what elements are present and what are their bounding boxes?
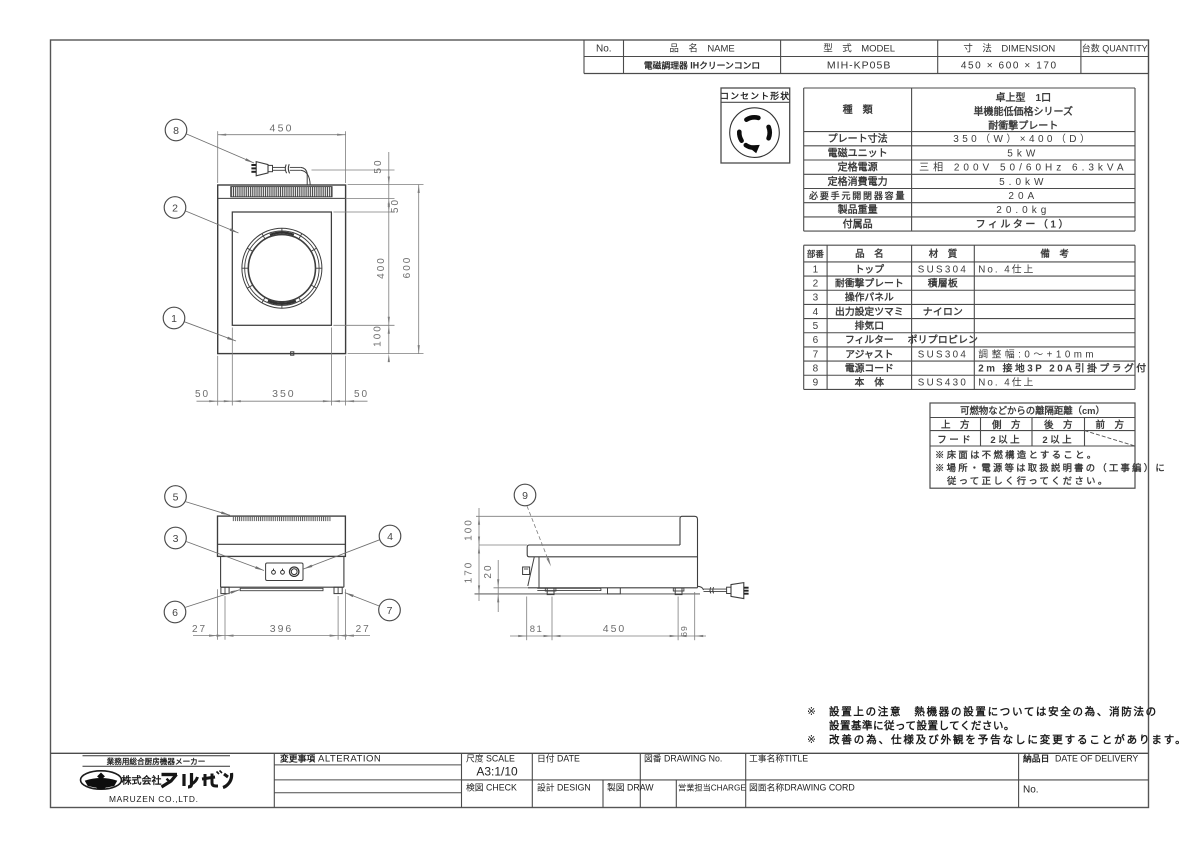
svg-text:図番 DRAWING No.: 図番 DRAWING No. — [644, 753, 722, 764]
svg-text:450 × 600 × 170: 450 × 600 × 170 — [961, 61, 1058, 72]
svg-text:7: 7 — [387, 605, 393, 617]
svg-text:卓上型 1口: 卓上型 1口 — [996, 91, 1052, 104]
svg-text:※床面は不燃構造とすること。: ※床面は不燃構造とすること。 — [935, 449, 1098, 460]
svg-text:備 考: 備 考 — [1040, 248, 1069, 260]
svg-text:50: 50 — [390, 198, 401, 213]
svg-text:2: 2 — [172, 202, 178, 214]
svg-text:27: 27 — [356, 624, 371, 635]
svg-text:350: 350 — [272, 388, 296, 400]
svg-text:ナイロン: ナイロン — [923, 306, 963, 318]
svg-text:1: 1 — [813, 264, 819, 275]
svg-text:50: 50 — [373, 158, 384, 173]
svg-text:※: ※ — [807, 734, 816, 746]
svg-text:170: 170 — [464, 561, 475, 584]
svg-text:9: 9 — [813, 378, 819, 389]
svg-text:400: 400 — [376, 256, 387, 279]
svg-text:2m 接地3P 20A引掛プラグ付: 2m 接地3P 20A引掛プラグ付 — [978, 362, 1148, 375]
svg-text:69: 69 — [679, 625, 689, 636]
svg-text:出力設定ツマミ: 出力設定ツマミ — [835, 305, 904, 318]
svg-text:製図 DRAW: 製図 DRAW — [607, 782, 654, 793]
svg-text:営業担当CHARGE: 営業担当CHARGE — [678, 783, 746, 793]
svg-text:必要手元開閉器容量: 必要手元開閉器容量 — [808, 190, 906, 201]
svg-text:3: 3 — [173, 533, 179, 545]
svg-text:尺度 SCALE: 尺度 SCALE — [466, 753, 515, 764]
svg-text:81: 81 — [530, 624, 544, 635]
svg-text:操作パネル: 操作パネル — [845, 291, 894, 304]
svg-text:350（W）×400（D）: 350（W）×400（D） — [953, 133, 1093, 145]
svg-text:定格電源: 定格電源 — [838, 161, 878, 174]
svg-text:No. 4仕上: No. 4仕上 — [978, 262, 1035, 275]
svg-text:5kW: 5kW — [1007, 148, 1039, 159]
svg-text:上 方: 上 方 — [941, 419, 970, 431]
svg-text:396: 396 — [270, 623, 294, 635]
svg-text:単機能低価格シリーズ: 単機能低価格シリーズ — [974, 105, 1074, 118]
svg-text:20.0kg: 20.0kg — [996, 205, 1050, 216]
svg-text:積層板: 積層板 — [927, 277, 958, 290]
svg-text:450: 450 — [270, 123, 294, 135]
svg-text:MIH-KP05B: MIH-KP05B — [827, 60, 891, 72]
svg-text:SUS430: SUS430 — [918, 378, 968, 389]
svg-text:定格消費電力: 定格消費電力 — [828, 175, 888, 188]
svg-text:耐衝撃プレート: 耐衝撃プレート — [988, 119, 1058, 132]
svg-text:本 体: 本 体 — [855, 376, 885, 389]
svg-text:従って正しく行ってください。: 従って正しく行ってください。 — [946, 475, 1110, 486]
svg-text:※場所・電源等は取扱説明書の（工事編）に: ※場所・電源等は取扱説明書の（工事編）に — [935, 462, 1167, 473]
svg-text:2以上: 2以上 — [990, 434, 1022, 446]
svg-text:MARUZEN CO.,LTD.: MARUZEN CO.,LTD. — [109, 794, 199, 804]
svg-text:排気口: 排気口 — [855, 319, 884, 332]
svg-text:4: 4 — [387, 531, 393, 543]
svg-text:5: 5 — [173, 491, 179, 503]
svg-text:5.0kW: 5.0kW — [999, 177, 1047, 188]
svg-text:No.: No. — [596, 44, 612, 55]
svg-text:2: 2 — [813, 279, 819, 290]
svg-text:設計 DESIGN: 設計 DESIGN — [537, 782, 591, 793]
svg-text:業務用総合厨房機器メーカー: 業務用総合厨房機器メーカー — [106, 756, 206, 766]
svg-text:※: ※ — [807, 706, 816, 718]
svg-text:27: 27 — [192, 624, 207, 635]
svg-text:9: 9 — [522, 490, 528, 502]
svg-text:100: 100 — [373, 324, 384, 347]
svg-text:耐衝撃プレート: 耐衝撃プレート — [835, 277, 904, 290]
svg-text:20: 20 — [483, 563, 494, 578]
svg-text:品 名: 品 名 — [855, 248, 884, 260]
svg-text:50: 50 — [354, 389, 369, 400]
svg-text:付属品: 付属品 — [843, 217, 873, 230]
svg-text:コンセント形状: コンセント形状 — [720, 90, 790, 101]
svg-text:部番: 部番 — [807, 249, 825, 259]
svg-text:型 式 MODEL: 型 式 MODEL — [823, 43, 895, 55]
svg-text:600: 600 — [402, 256, 413, 279]
svg-text:フード: フード — [937, 435, 973, 446]
svg-text:電磁ユニット: 電磁ユニット — [828, 146, 888, 159]
svg-text:プレート寸法: プレート寸法 — [828, 132, 888, 145]
svg-text:製品重量: 製品重量 — [837, 203, 878, 216]
svg-text:フィルター（1）: フィルター（1） — [976, 217, 1071, 230]
svg-text:後 方: 後 方 — [1044, 419, 1073, 431]
svg-text:電源コード: 電源コード — [845, 362, 894, 375]
svg-text:変更事項: 変更事項 — [280, 753, 315, 764]
svg-text:SUS304: SUS304 — [918, 349, 968, 360]
svg-text:三相 200V 50/60Hz 6.3kVA: 三相 200V 50/60Hz 6.3kVA — [919, 161, 1127, 174]
svg-text:ALTERATION: ALTERATION — [318, 754, 381, 765]
svg-text:図面名称DRAWING CORD: 図面名称DRAWING CORD — [749, 782, 855, 793]
svg-text:品 名 NAME: 品 名 NAME — [669, 43, 734, 55]
svg-text:電磁調理器 IHクリーンコンロ: 電磁調理器 IHクリーンコンロ — [644, 60, 760, 71]
svg-text:7: 7 — [813, 349, 819, 360]
svg-text:種 類: 種 類 — [843, 103, 874, 116]
svg-text:1: 1 — [171, 313, 177, 325]
svg-text:フィルター: フィルター — [845, 334, 894, 346]
svg-text:台数 QUANTITY: 台数 QUANTITY — [1082, 43, 1148, 54]
svg-text:8: 8 — [173, 125, 179, 137]
svg-text:材 質: 材 質 — [928, 248, 958, 260]
svg-text:5: 5 — [813, 321, 819, 332]
svg-text:可燃物などからの離隔距離（cm）: 可燃物などからの離隔距離（cm） — [960, 405, 1105, 416]
svg-text:No.: No. — [1023, 785, 1039, 796]
svg-text:トップ: トップ — [855, 262, 885, 275]
svg-text:検図 CHECK: 検図 CHECK — [466, 782, 517, 793]
svg-text:A3:1/10: A3:1/10 — [476, 765, 518, 779]
svg-text:450: 450 — [603, 623, 627, 635]
svg-text:アジャスト: アジャスト — [845, 348, 893, 360]
svg-text:50: 50 — [195, 389, 210, 400]
svg-text:側 方: 側 方 — [991, 419, 1021, 431]
svg-text:改善の為、仕様及び外観を予告なしに変更することがあります。: 改善の為、仕様及び外観を予告なしに変更することがあります。 — [829, 733, 1188, 746]
svg-text:2以上: 2以上 — [1042, 434, 1074, 446]
svg-text:6: 6 — [813, 335, 819, 346]
svg-text:No. 4仕上: No. 4仕上 — [978, 376, 1035, 389]
svg-text:前 方: 前 方 — [1095, 419, 1124, 431]
svg-text:寸 法 DIMENSION: 寸 法 DIMENSION — [963, 43, 1055, 55]
svg-text:20A: 20A — [1008, 191, 1038, 202]
svg-text:DATE OF DELIVERY: DATE OF DELIVERY — [1055, 754, 1138, 764]
svg-text:設置基準に従って設置してください。: 設置基準に従って設置してください。 — [829, 719, 1015, 732]
svg-text:ポリプロピレン: ポリプロピレン — [908, 333, 979, 346]
svg-text:SUS304: SUS304 — [918, 264, 968, 275]
svg-text:4: 4 — [813, 307, 819, 318]
svg-text:日付 DATE: 日付 DATE — [537, 754, 580, 764]
svg-text:工事名称TITLE: 工事名称TITLE — [749, 753, 808, 764]
svg-text:100: 100 — [464, 518, 475, 541]
svg-text:8: 8 — [813, 364, 819, 375]
svg-text:調整幅:0〜+10mm: 調整幅:0〜+10mm — [978, 347, 1097, 360]
svg-text:6: 6 — [172, 607, 178, 619]
svg-text:設置上の注意 熱機器の設置については安全の為、消防法の: 設置上の注意 熱機器の設置については安全の為、消防法の — [829, 705, 1158, 718]
svg-text:株式会社: 株式会社 — [122, 774, 162, 787]
svg-text:納品日: 納品日 — [1023, 753, 1049, 764]
svg-text:3: 3 — [813, 293, 819, 304]
